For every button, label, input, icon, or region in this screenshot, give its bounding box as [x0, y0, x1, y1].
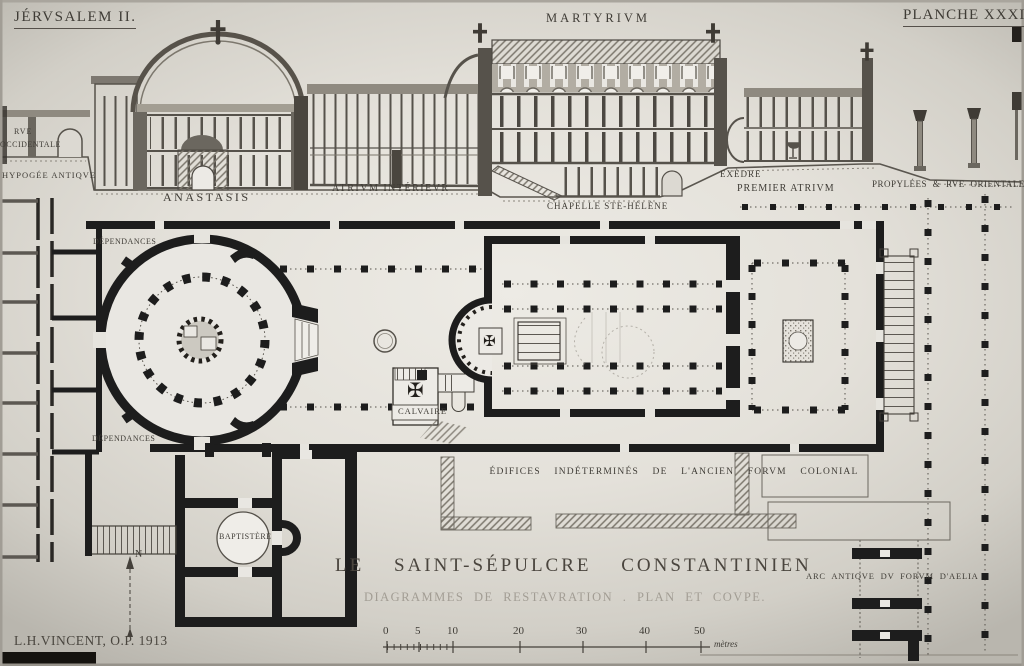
- plate-scan: JÉRVSALEM II. PLANCHE XXXII MARTYRIVM RV…: [0, 0, 1024, 666]
- scale-tick-20: 20: [513, 626, 524, 638]
- label-baptistere: BAPTISTÈRE: [219, 533, 272, 541]
- label-premier-atrium: PREMIER ATRIVM: [737, 184, 835, 195]
- compass-north-label: N: [135, 550, 142, 561]
- plan-rotunda-east-portal: [292, 303, 318, 377]
- label-edifices-forum: ÉDIFICES INDÉTERMINÉS DE L'ANCIEN FORVM …: [478, 468, 870, 478]
- baptistere-apse: [282, 524, 297, 552]
- plan-rue-orientale: [700, 194, 1018, 658]
- section-drawing: [0, 20, 1024, 201]
- label-dependances-nord: DÉPENDANCES: [93, 238, 156, 246]
- scale-tick-0: 0: [383, 626, 389, 638]
- martyrium-west-cross-finial: [473, 23, 487, 43]
- plate-series: JÉRVSALEM II.: [14, 10, 136, 29]
- compass-north-arrow: [126, 556, 134, 637]
- label-chapelle-ste-helene: CHAPELLE STE-HÉLÈNE: [547, 202, 668, 211]
- atrium-cross-finial: [861, 42, 874, 60]
- scale-tick-10: 10: [447, 626, 458, 638]
- label-dependances-sud: DÉPENDANCES: [92, 435, 155, 443]
- label-rue-occidentale-2: OCCIDENTALE: [0, 141, 61, 149]
- apse-cross-icon: ✠: [483, 332, 496, 350]
- label-martyrium: MARTYRIVM: [546, 12, 650, 25]
- calvaire-cross-icon: ✠: [407, 378, 424, 402]
- plate-signature: L.H.VINCENT, O.P. 1913: [14, 634, 168, 648]
- label-hypogee: HYPOGÉE ANTIQVE: [2, 171, 96, 180]
- basilica-bema-steps: [514, 318, 566, 364]
- plan-west-stairs: [86, 526, 176, 554]
- section-tomb-aedicule: [178, 135, 228, 190]
- plate-title: LE SAINT-SÉPULCRE CONSTANTINIEN: [335, 556, 795, 576]
- plan-basilica: [452, 236, 740, 417]
- label-atrium-interieur: ATRIVM INTÉRIEVR: [332, 184, 450, 195]
- label-exedre: EXÈDRE: [720, 170, 762, 179]
- section-anastasis: [133, 20, 305, 190]
- section-atrium-interieur: [294, 84, 490, 190]
- section-martyrium: [445, 23, 727, 200]
- label-anastasis: ANASTASIS: [163, 191, 251, 204]
- plate-subtitle: DIAGRAMMES DE RESTAVRATION . PLAN ET COV…: [360, 591, 770, 604]
- label-calvaire: CALVAIRE: [398, 407, 447, 416]
- section-premier-atrium: [727, 42, 874, 162]
- label-propylees: PROPYLÉES & RVE ORIENTALE: [872, 180, 1024, 189]
- scale-unit: mètres: [714, 640, 738, 649]
- scale-bar: [383, 641, 710, 653]
- section-propylees-columns: [913, 92, 1022, 171]
- scale-tick-30: 30: [576, 626, 587, 638]
- scale-tick-50: 50: [694, 626, 705, 638]
- section-crypte-ste-helene: [492, 166, 682, 200]
- label-rue-occidentale-1: RVE: [14, 128, 32, 136]
- plan-arc-antique: [852, 540, 922, 661]
- plan-premier-atrium: [752, 221, 918, 452]
- scale-tick-40: 40: [639, 626, 650, 638]
- scale-tick-5: 5: [415, 626, 421, 638]
- label-arc-antique: ARC ANTIQVE DV FORVM D'AELIA: [806, 572, 979, 581]
- plan-rue-occidentale: [0, 198, 99, 562]
- plan-rotunda: [93, 230, 318, 450]
- plan-propylees-steps: [880, 249, 918, 421]
- atrium-fountain: [783, 320, 813, 362]
- plate-number: PLANCHE XXXII: [903, 8, 1024, 27]
